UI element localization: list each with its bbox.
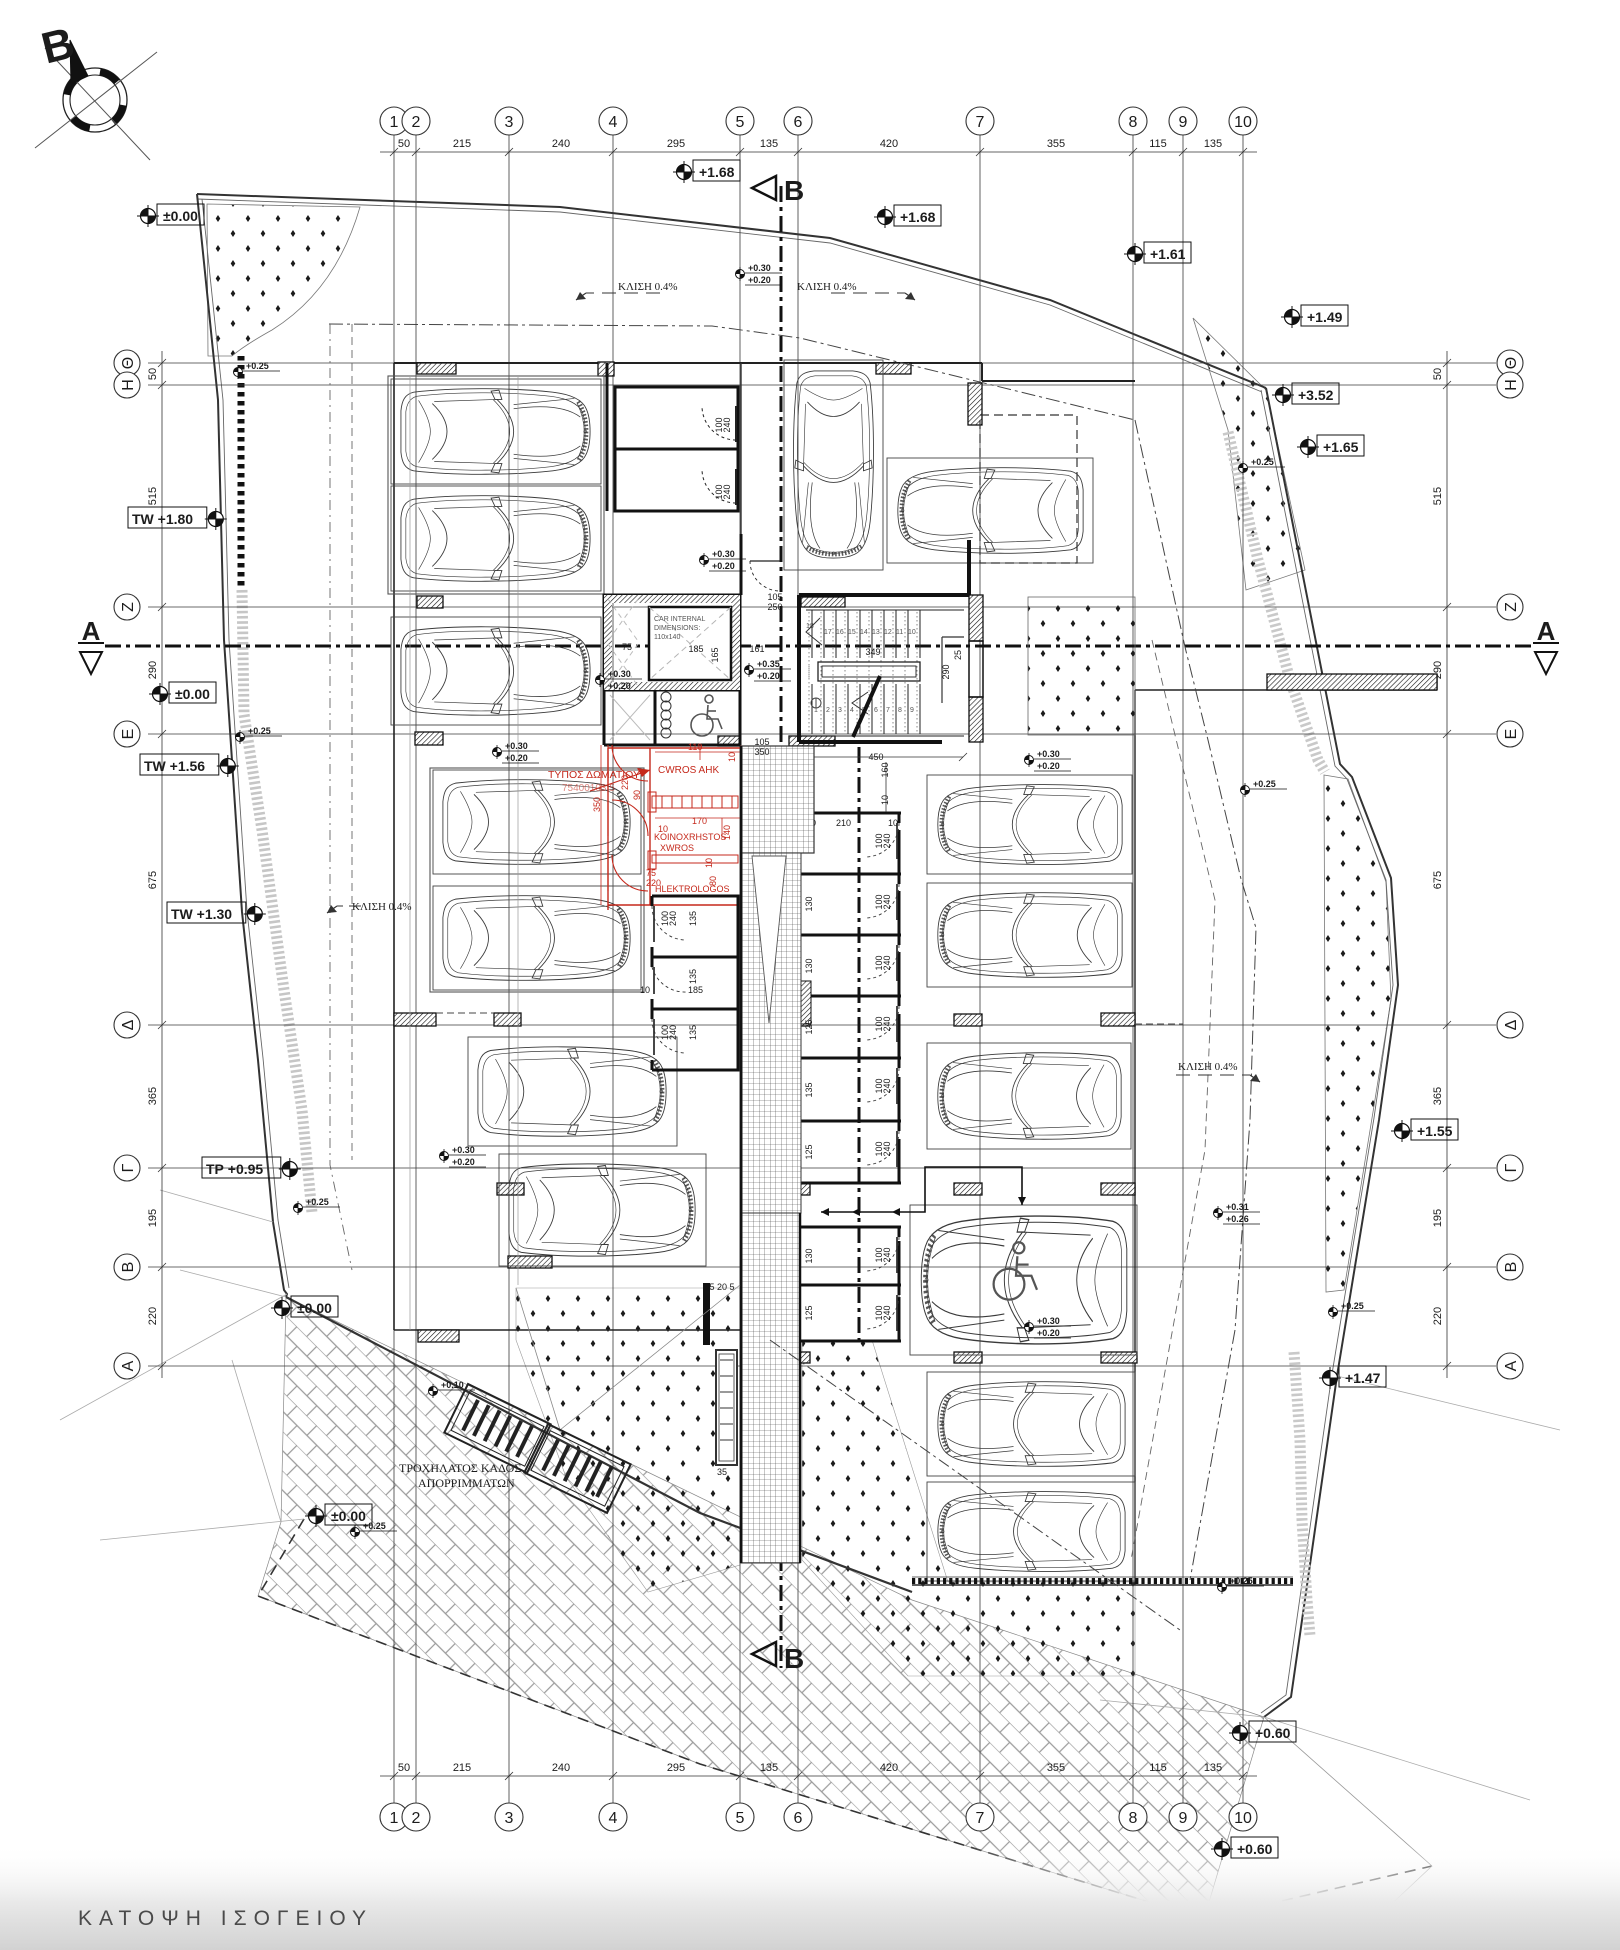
svg-text:10: 10 bbox=[704, 858, 714, 868]
svg-text:135: 135 bbox=[688, 969, 698, 984]
svg-text:8: 8 bbox=[1129, 1810, 1138, 1827]
svg-text:75: 75 bbox=[646, 868, 656, 878]
svg-text:±0.00: ±0.00 bbox=[297, 1300, 332, 1316]
svg-text:+0.30: +0.30 bbox=[1037, 749, 1060, 759]
svg-text:±0.00: ±0.00 bbox=[331, 1508, 366, 1524]
svg-text:220: 220 bbox=[1432, 1307, 1444, 1325]
svg-text:Β: Β bbox=[1503, 1262, 1520, 1273]
svg-text:8: 8 bbox=[1129, 114, 1138, 131]
svg-text:1: 1 bbox=[390, 114, 399, 131]
svg-text:ΤΡΟΧΗΛΑΤΟΣ ΚΑΔΟΣ: ΤΡΟΧΗΛΑΤΟΣ ΚΑΔΟΣ bbox=[399, 1461, 521, 1475]
svg-text:135: 135 bbox=[1204, 138, 1222, 150]
svg-text:240: 240 bbox=[882, 1305, 892, 1320]
svg-text:+0.30: +0.30 bbox=[608, 669, 631, 679]
svg-text:+0.60: +0.60 bbox=[1255, 1725, 1291, 1741]
svg-text:675: 675 bbox=[147, 871, 159, 889]
svg-text:515: 515 bbox=[147, 487, 159, 505]
svg-text:Ζ: Ζ bbox=[1503, 602, 1520, 612]
svg-text:5: 5 bbox=[736, 1810, 745, 1827]
svg-text:5: 5 bbox=[736, 114, 745, 131]
svg-text:135: 135 bbox=[1204, 1762, 1222, 1774]
svg-text:240: 240 bbox=[882, 1141, 892, 1156]
svg-text:240: 240 bbox=[882, 894, 892, 909]
svg-text:165: 165 bbox=[710, 647, 720, 662]
svg-text:105: 105 bbox=[767, 592, 782, 602]
svg-text:+0.30: +0.30 bbox=[712, 549, 735, 559]
svg-text:XWROS: XWROS bbox=[660, 843, 694, 853]
svg-text:+1.65: +1.65 bbox=[1323, 439, 1359, 455]
svg-text:215: 215 bbox=[453, 1762, 471, 1774]
svg-text:349: 349 bbox=[865, 647, 880, 657]
svg-text:130: 130 bbox=[804, 1248, 814, 1263]
svg-text:+0.30: +0.30 bbox=[505, 741, 528, 751]
svg-text:10: 10 bbox=[1234, 1810, 1252, 1827]
svg-text:240: 240 bbox=[668, 911, 678, 926]
svg-text:240: 240 bbox=[552, 1762, 570, 1774]
svg-text:6: 6 bbox=[794, 114, 803, 131]
svg-text:Δ: Δ bbox=[120, 1019, 137, 1030]
svg-text:CAR INTERNAL: CAR INTERNAL bbox=[654, 616, 705, 623]
svg-text:215: 215 bbox=[453, 138, 471, 150]
svg-text:+0.20: +0.20 bbox=[1037, 1328, 1060, 1338]
svg-text:9: 9 bbox=[1179, 114, 1188, 131]
svg-text:135: 135 bbox=[760, 1762, 778, 1774]
svg-text:355: 355 bbox=[1047, 138, 1065, 150]
svg-text:15: 15 bbox=[848, 629, 856, 636]
svg-text:+0.60: +0.60 bbox=[1237, 1841, 1273, 1857]
svg-text:9: 9 bbox=[910, 707, 914, 714]
svg-text:135: 135 bbox=[688, 911, 698, 926]
svg-text:TW +1.30: TW +1.30 bbox=[171, 906, 232, 922]
svg-text:Ζ: Ζ bbox=[120, 602, 137, 612]
svg-text:240: 240 bbox=[552, 138, 570, 150]
svg-text:2: 2 bbox=[826, 707, 830, 714]
svg-text:3: 3 bbox=[838, 707, 842, 714]
svg-text:DIMENSIONS:: DIMENSIONS: bbox=[654, 625, 700, 632]
svg-text:+0.20: +0.20 bbox=[452, 1157, 475, 1167]
svg-text:250: 250 bbox=[767, 602, 782, 612]
svg-text:240: 240 bbox=[882, 1078, 892, 1093]
svg-text:295: 295 bbox=[667, 138, 685, 150]
svg-text:+1.55: +1.55 bbox=[1417, 1123, 1453, 1139]
svg-text:+0.30: +0.30 bbox=[748, 263, 771, 273]
svg-text:18: 18 bbox=[806, 623, 814, 630]
svg-text:+0.10: +0.10 bbox=[441, 1380, 464, 1390]
svg-text:HLEKTROLOGOS: HLEKTROLOGOS bbox=[655, 884, 730, 894]
svg-text:130: 130 bbox=[804, 958, 814, 973]
svg-text:240: 240 bbox=[882, 1247, 892, 1262]
svg-text:240: 240 bbox=[882, 955, 892, 970]
svg-text:B: B bbox=[784, 1643, 804, 1674]
svg-text:10: 10 bbox=[658, 824, 668, 834]
svg-text:135: 135 bbox=[760, 138, 778, 150]
svg-text:+0.25: +0.25 bbox=[1253, 779, 1276, 789]
svg-text:115: 115 bbox=[1149, 1762, 1167, 1774]
svg-text:10: 10 bbox=[888, 818, 898, 828]
svg-text:+0.20: +0.20 bbox=[757, 671, 780, 681]
svg-text:2: 2 bbox=[412, 114, 421, 131]
svg-text:CWROS AHK: CWROS AHK bbox=[658, 765, 719, 776]
svg-text:7: 7 bbox=[976, 1810, 985, 1827]
svg-text:+1.49: +1.49 bbox=[1307, 309, 1343, 325]
svg-text:Η: Η bbox=[120, 379, 137, 391]
svg-text:9: 9 bbox=[1179, 1810, 1188, 1827]
svg-text:B: B bbox=[784, 175, 804, 206]
svg-text:+1.68: +1.68 bbox=[699, 164, 735, 180]
svg-text:290: 290 bbox=[147, 661, 159, 679]
svg-text:A: A bbox=[82, 616, 101, 646]
svg-text:TW +1.56: TW +1.56 bbox=[144, 758, 205, 774]
svg-text:10: 10 bbox=[880, 795, 890, 805]
svg-text:TW +1.80: TW +1.80 bbox=[132, 511, 193, 527]
svg-text:195: 195 bbox=[1432, 1209, 1444, 1227]
svg-text:170: 170 bbox=[692, 816, 707, 826]
svg-text:295: 295 bbox=[667, 1762, 685, 1774]
svg-text:ΚΛΙΣΗ 0.4%: ΚΛΙΣΗ 0.4% bbox=[352, 901, 412, 913]
svg-text:240: 240 bbox=[668, 1025, 678, 1040]
svg-text:420: 420 bbox=[880, 1762, 898, 1774]
svg-text:ΑΠΟΡΡΙΜΜΑΤΩΝ: ΑΠΟΡΡΙΜΜΑΤΩΝ bbox=[418, 1476, 515, 1490]
svg-text:Γ: Γ bbox=[1503, 1163, 1520, 1172]
svg-text:Θ: Θ bbox=[1503, 357, 1520, 369]
svg-text:17: 17 bbox=[824, 629, 832, 636]
svg-text:+0.26: +0.26 bbox=[1226, 1214, 1249, 1224]
svg-text:355: 355 bbox=[1047, 1762, 1065, 1774]
svg-text:210: 210 bbox=[836, 818, 851, 828]
svg-text:185: 185 bbox=[688, 644, 703, 654]
svg-text:13: 13 bbox=[872, 629, 880, 636]
svg-text:350: 350 bbox=[754, 747, 769, 757]
svg-text:11: 11 bbox=[896, 629, 903, 636]
svg-text:±0.00: ±0.00 bbox=[175, 686, 210, 702]
svg-text:+0.25: +0.25 bbox=[1341, 1301, 1364, 1311]
svg-text:240: 240 bbox=[882, 833, 892, 848]
svg-text:195: 195 bbox=[147, 1209, 159, 1227]
svg-text:161: 161 bbox=[749, 644, 764, 654]
svg-text:240: 240 bbox=[882, 1016, 892, 1031]
svg-text:14: 14 bbox=[860, 629, 868, 636]
svg-text:+0.20: +0.20 bbox=[748, 275, 771, 285]
svg-text:130: 130 bbox=[804, 896, 814, 911]
svg-text:ΚΑΤΟΨΗ ΙΣΟΓΕΙΟΥ: ΚΑΤΟΨΗ ΙΣΟΓΕΙΟΥ bbox=[78, 1907, 373, 1930]
svg-text:+0.20: +0.20 bbox=[505, 753, 528, 763]
svg-text:50: 50 bbox=[1432, 368, 1444, 380]
svg-text:110x140: 110x140 bbox=[654, 634, 680, 641]
svg-text:+0.25: +0.25 bbox=[248, 726, 271, 736]
svg-text:3: 3 bbox=[505, 114, 514, 131]
svg-text:A: A bbox=[1537, 616, 1556, 646]
svg-text:ΚΛΙΣΗ 0.4%: ΚΛΙΣΗ 0.4% bbox=[618, 281, 678, 293]
svg-text:50: 50 bbox=[398, 138, 410, 150]
svg-text:+0.25: +0.25 bbox=[246, 361, 269, 371]
svg-text:220: 220 bbox=[646, 878, 661, 888]
svg-text:675: 675 bbox=[1432, 871, 1444, 889]
svg-text:240: 240 bbox=[722, 417, 732, 432]
svg-text:+0.35: +0.35 bbox=[757, 659, 780, 669]
svg-text:450: 450 bbox=[868, 752, 883, 762]
svg-text:+0.31: +0.31 bbox=[1226, 1202, 1249, 1212]
svg-text:+0.25: +0.25 bbox=[1230, 1576, 1253, 1586]
svg-text:Β: Β bbox=[120, 1262, 137, 1273]
svg-text:Ε: Ε bbox=[1503, 729, 1520, 740]
svg-text:2: 2 bbox=[412, 1810, 421, 1827]
svg-text:10: 10 bbox=[1234, 114, 1252, 131]
svg-text:6: 6 bbox=[794, 1810, 803, 1827]
svg-text:+0.20: +0.20 bbox=[712, 561, 735, 571]
svg-text:50: 50 bbox=[398, 1762, 410, 1774]
svg-text:4: 4 bbox=[609, 1810, 618, 1827]
svg-text:185: 185 bbox=[688, 985, 703, 995]
svg-text:125: 125 bbox=[804, 1305, 814, 1320]
svg-text:220: 220 bbox=[620, 775, 630, 790]
svg-text:80: 80 bbox=[708, 876, 718, 886]
svg-text:10: 10 bbox=[640, 985, 650, 995]
svg-text:+0.30: +0.30 bbox=[452, 1145, 475, 1155]
svg-text:4: 4 bbox=[609, 114, 618, 131]
svg-text:110: 110 bbox=[688, 742, 702, 752]
svg-text:5 20 5: 5 20 5 bbox=[709, 1282, 734, 1292]
svg-text:Γ: Γ bbox=[120, 1163, 137, 1172]
svg-text:Δ: Δ bbox=[1503, 1019, 1520, 1030]
svg-text:4: 4 bbox=[850, 707, 854, 714]
svg-text:+1.61: +1.61 bbox=[1150, 246, 1186, 262]
svg-text:ΚΛΙΣΗ 0.4%: ΚΛΙΣΗ 0.4% bbox=[1178, 1061, 1238, 1073]
svg-text:7: 7 bbox=[976, 114, 985, 131]
svg-text:240: 240 bbox=[722, 484, 732, 499]
svg-text:+3.52: +3.52 bbox=[1298, 387, 1334, 403]
svg-text:365: 365 bbox=[147, 1087, 159, 1105]
svg-text:3: 3 bbox=[505, 1810, 514, 1827]
svg-text:35: 35 bbox=[717, 1467, 727, 1477]
svg-text:420: 420 bbox=[880, 138, 898, 150]
svg-text:365: 365 bbox=[1432, 1087, 1444, 1105]
svg-text:+0.20: +0.20 bbox=[608, 681, 631, 691]
svg-text:7: 7 bbox=[886, 707, 890, 714]
svg-text:+0.20: +0.20 bbox=[1037, 761, 1060, 771]
svg-text:+0.25: +0.25 bbox=[1251, 457, 1274, 467]
svg-text:135: 135 bbox=[804, 1082, 814, 1097]
svg-text:125: 125 bbox=[804, 1019, 814, 1034]
svg-text:16: 16 bbox=[836, 629, 844, 636]
svg-text:10: 10 bbox=[727, 752, 737, 762]
svg-text:Θ: Θ bbox=[120, 357, 137, 369]
svg-text:25: 25 bbox=[953, 650, 963, 660]
svg-text:ΤΡ +0.95: ΤΡ +0.95 bbox=[206, 1161, 263, 1177]
svg-text:1: 1 bbox=[390, 1810, 399, 1827]
svg-text:+0.30: +0.30 bbox=[1037, 1316, 1060, 1326]
svg-text:220: 220 bbox=[147, 1307, 159, 1325]
svg-text:Η: Η bbox=[1503, 379, 1520, 391]
svg-text:125: 125 bbox=[804, 1144, 814, 1159]
svg-text:Ε: Ε bbox=[120, 729, 137, 740]
svg-text:±0.00: ±0.00 bbox=[163, 208, 198, 224]
svg-text:+0.25: +0.25 bbox=[306, 1197, 329, 1207]
svg-text:350: 350 bbox=[592, 797, 602, 812]
svg-text:10: 10 bbox=[908, 629, 916, 636]
svg-text:290: 290 bbox=[941, 664, 951, 679]
svg-text:+1.47: +1.47 bbox=[1345, 1370, 1381, 1386]
svg-text:ΚΛΙΣΗ 0.4%: ΚΛΙΣΗ 0.4% bbox=[797, 281, 857, 293]
svg-text:50: 50 bbox=[147, 368, 159, 380]
svg-text:75: 75 bbox=[622, 642, 632, 652]
svg-text:515: 515 bbox=[1432, 487, 1444, 505]
svg-text:105: 105 bbox=[754, 737, 769, 747]
svg-text:90: 90 bbox=[632, 790, 642, 800]
svg-text:Α: Α bbox=[1503, 1360, 1520, 1371]
svg-text:115: 115 bbox=[1149, 138, 1167, 150]
svg-text:12: 12 bbox=[884, 629, 892, 636]
svg-text:+1.68: +1.68 bbox=[900, 209, 936, 225]
svg-text:8: 8 bbox=[898, 707, 902, 714]
svg-text:+0.25: +0.25 bbox=[363, 1521, 386, 1531]
svg-text:135: 135 bbox=[688, 1025, 698, 1040]
svg-text:160: 160 bbox=[880, 762, 890, 777]
svg-text:6: 6 bbox=[874, 707, 878, 714]
svg-text:Α: Α bbox=[120, 1360, 137, 1371]
svg-text:140: 140 bbox=[722, 825, 732, 840]
